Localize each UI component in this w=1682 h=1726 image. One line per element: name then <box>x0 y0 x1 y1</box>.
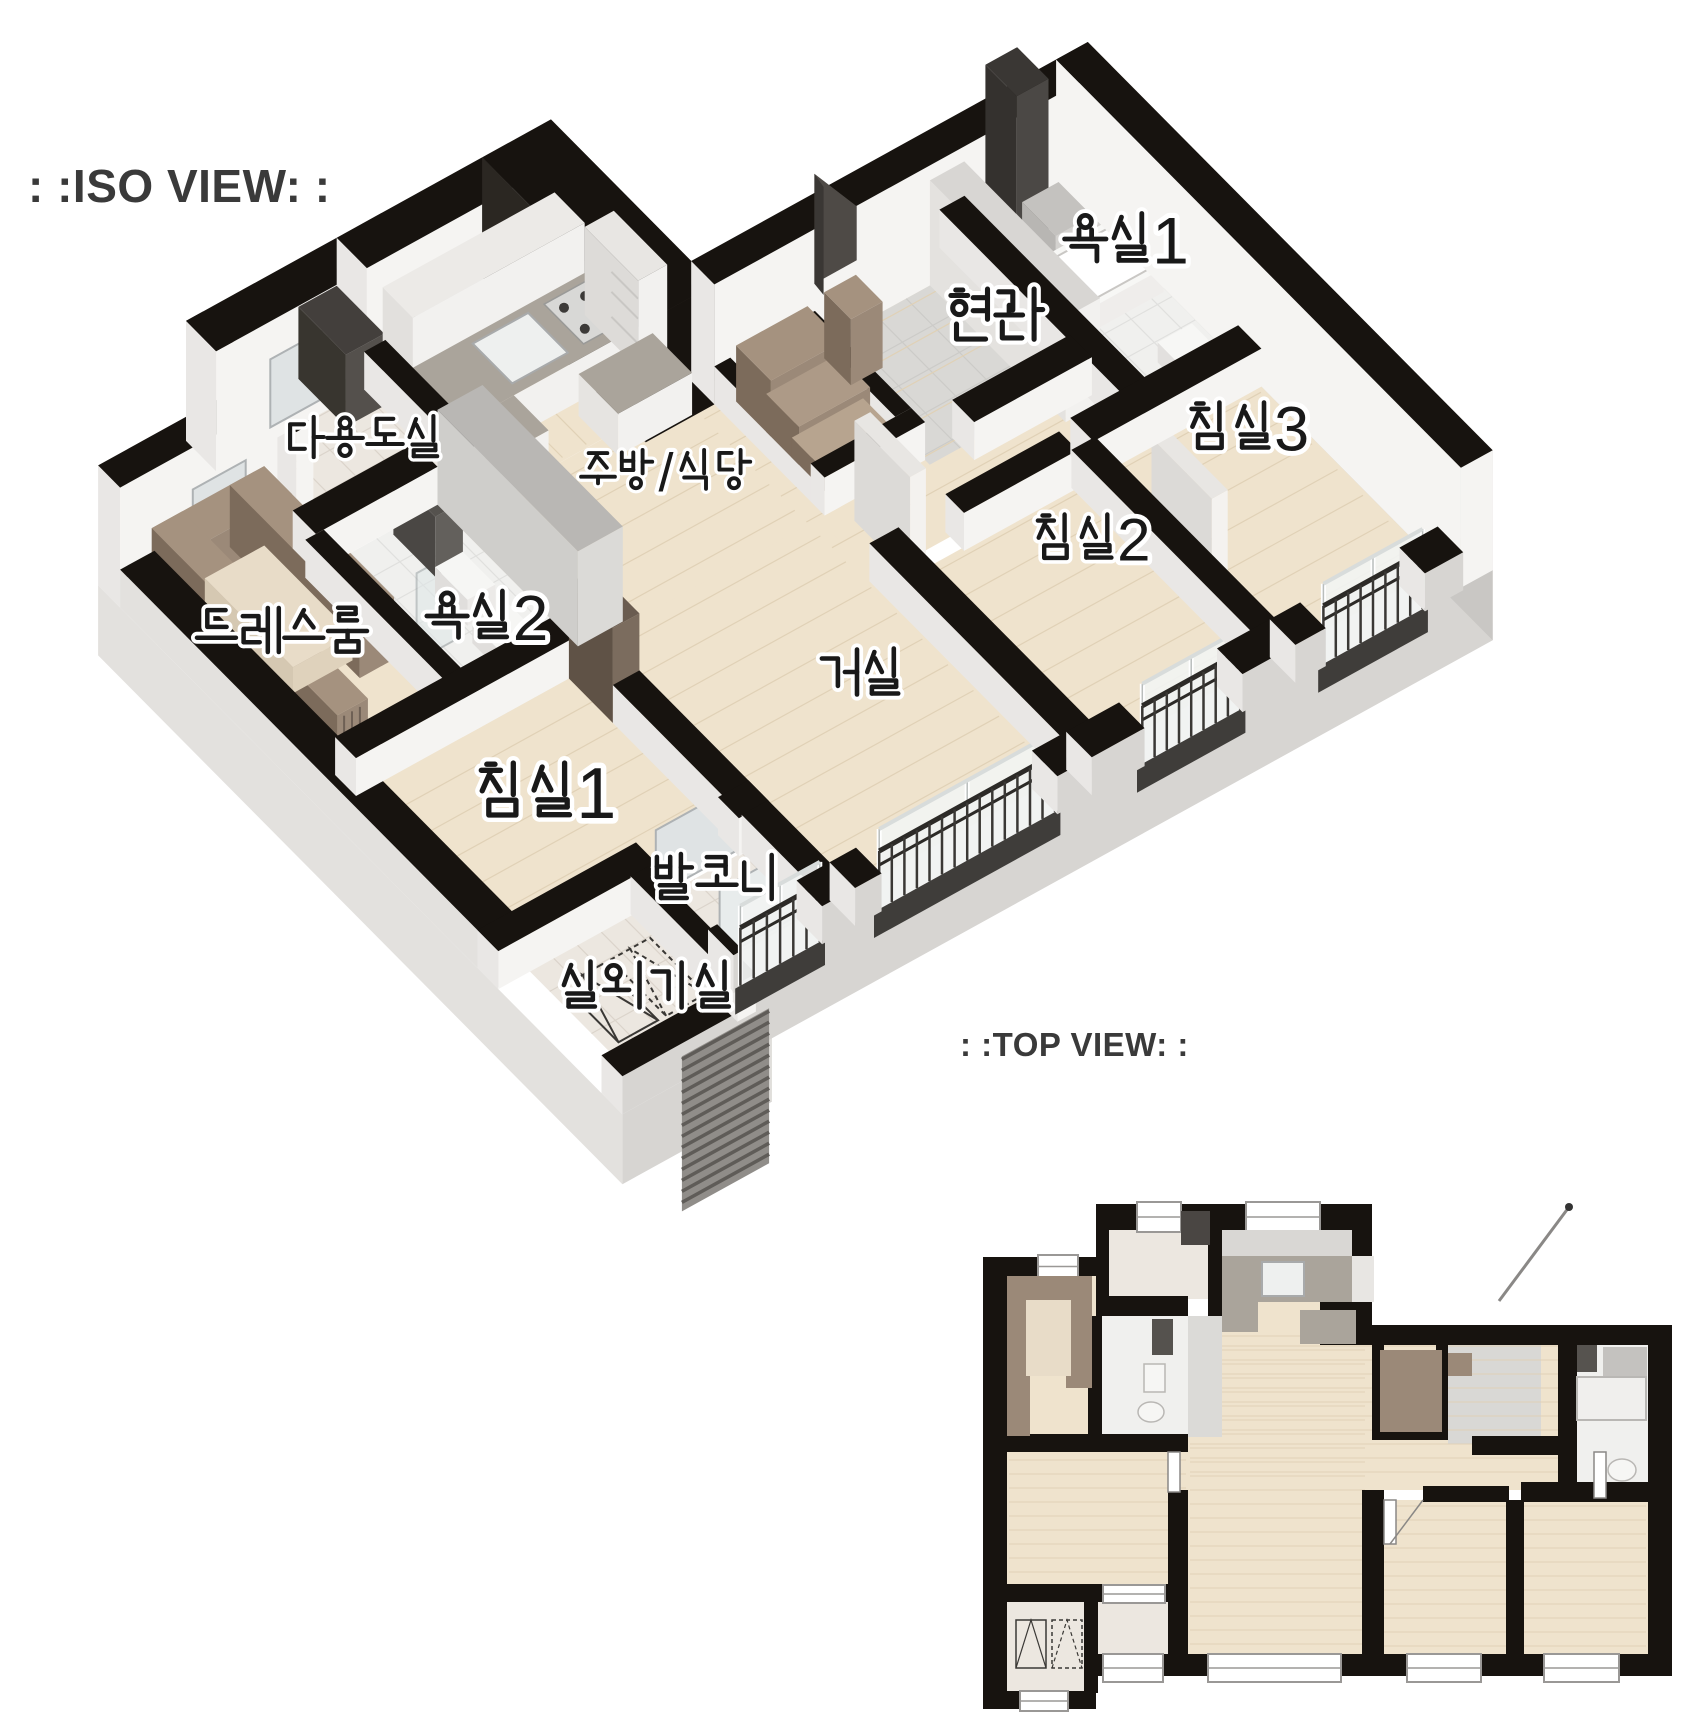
svg-text:2: 2 <box>513 582 549 654</box>
svg-text:3: 3 <box>1274 394 1309 464</box>
svg-text:: :TOP VIEW: :: : :TOP VIEW: : <box>960 1026 1189 1063</box>
svg-text:: :ISO VIEW: :: : :ISO VIEW: : <box>28 160 331 212</box>
svg-text:1: 1 <box>1152 204 1189 278</box>
svg-text:1: 1 <box>576 754 616 834</box>
svg-text:2: 2 <box>1117 506 1150 573</box>
svg-text:/: / <box>658 443 673 503</box>
